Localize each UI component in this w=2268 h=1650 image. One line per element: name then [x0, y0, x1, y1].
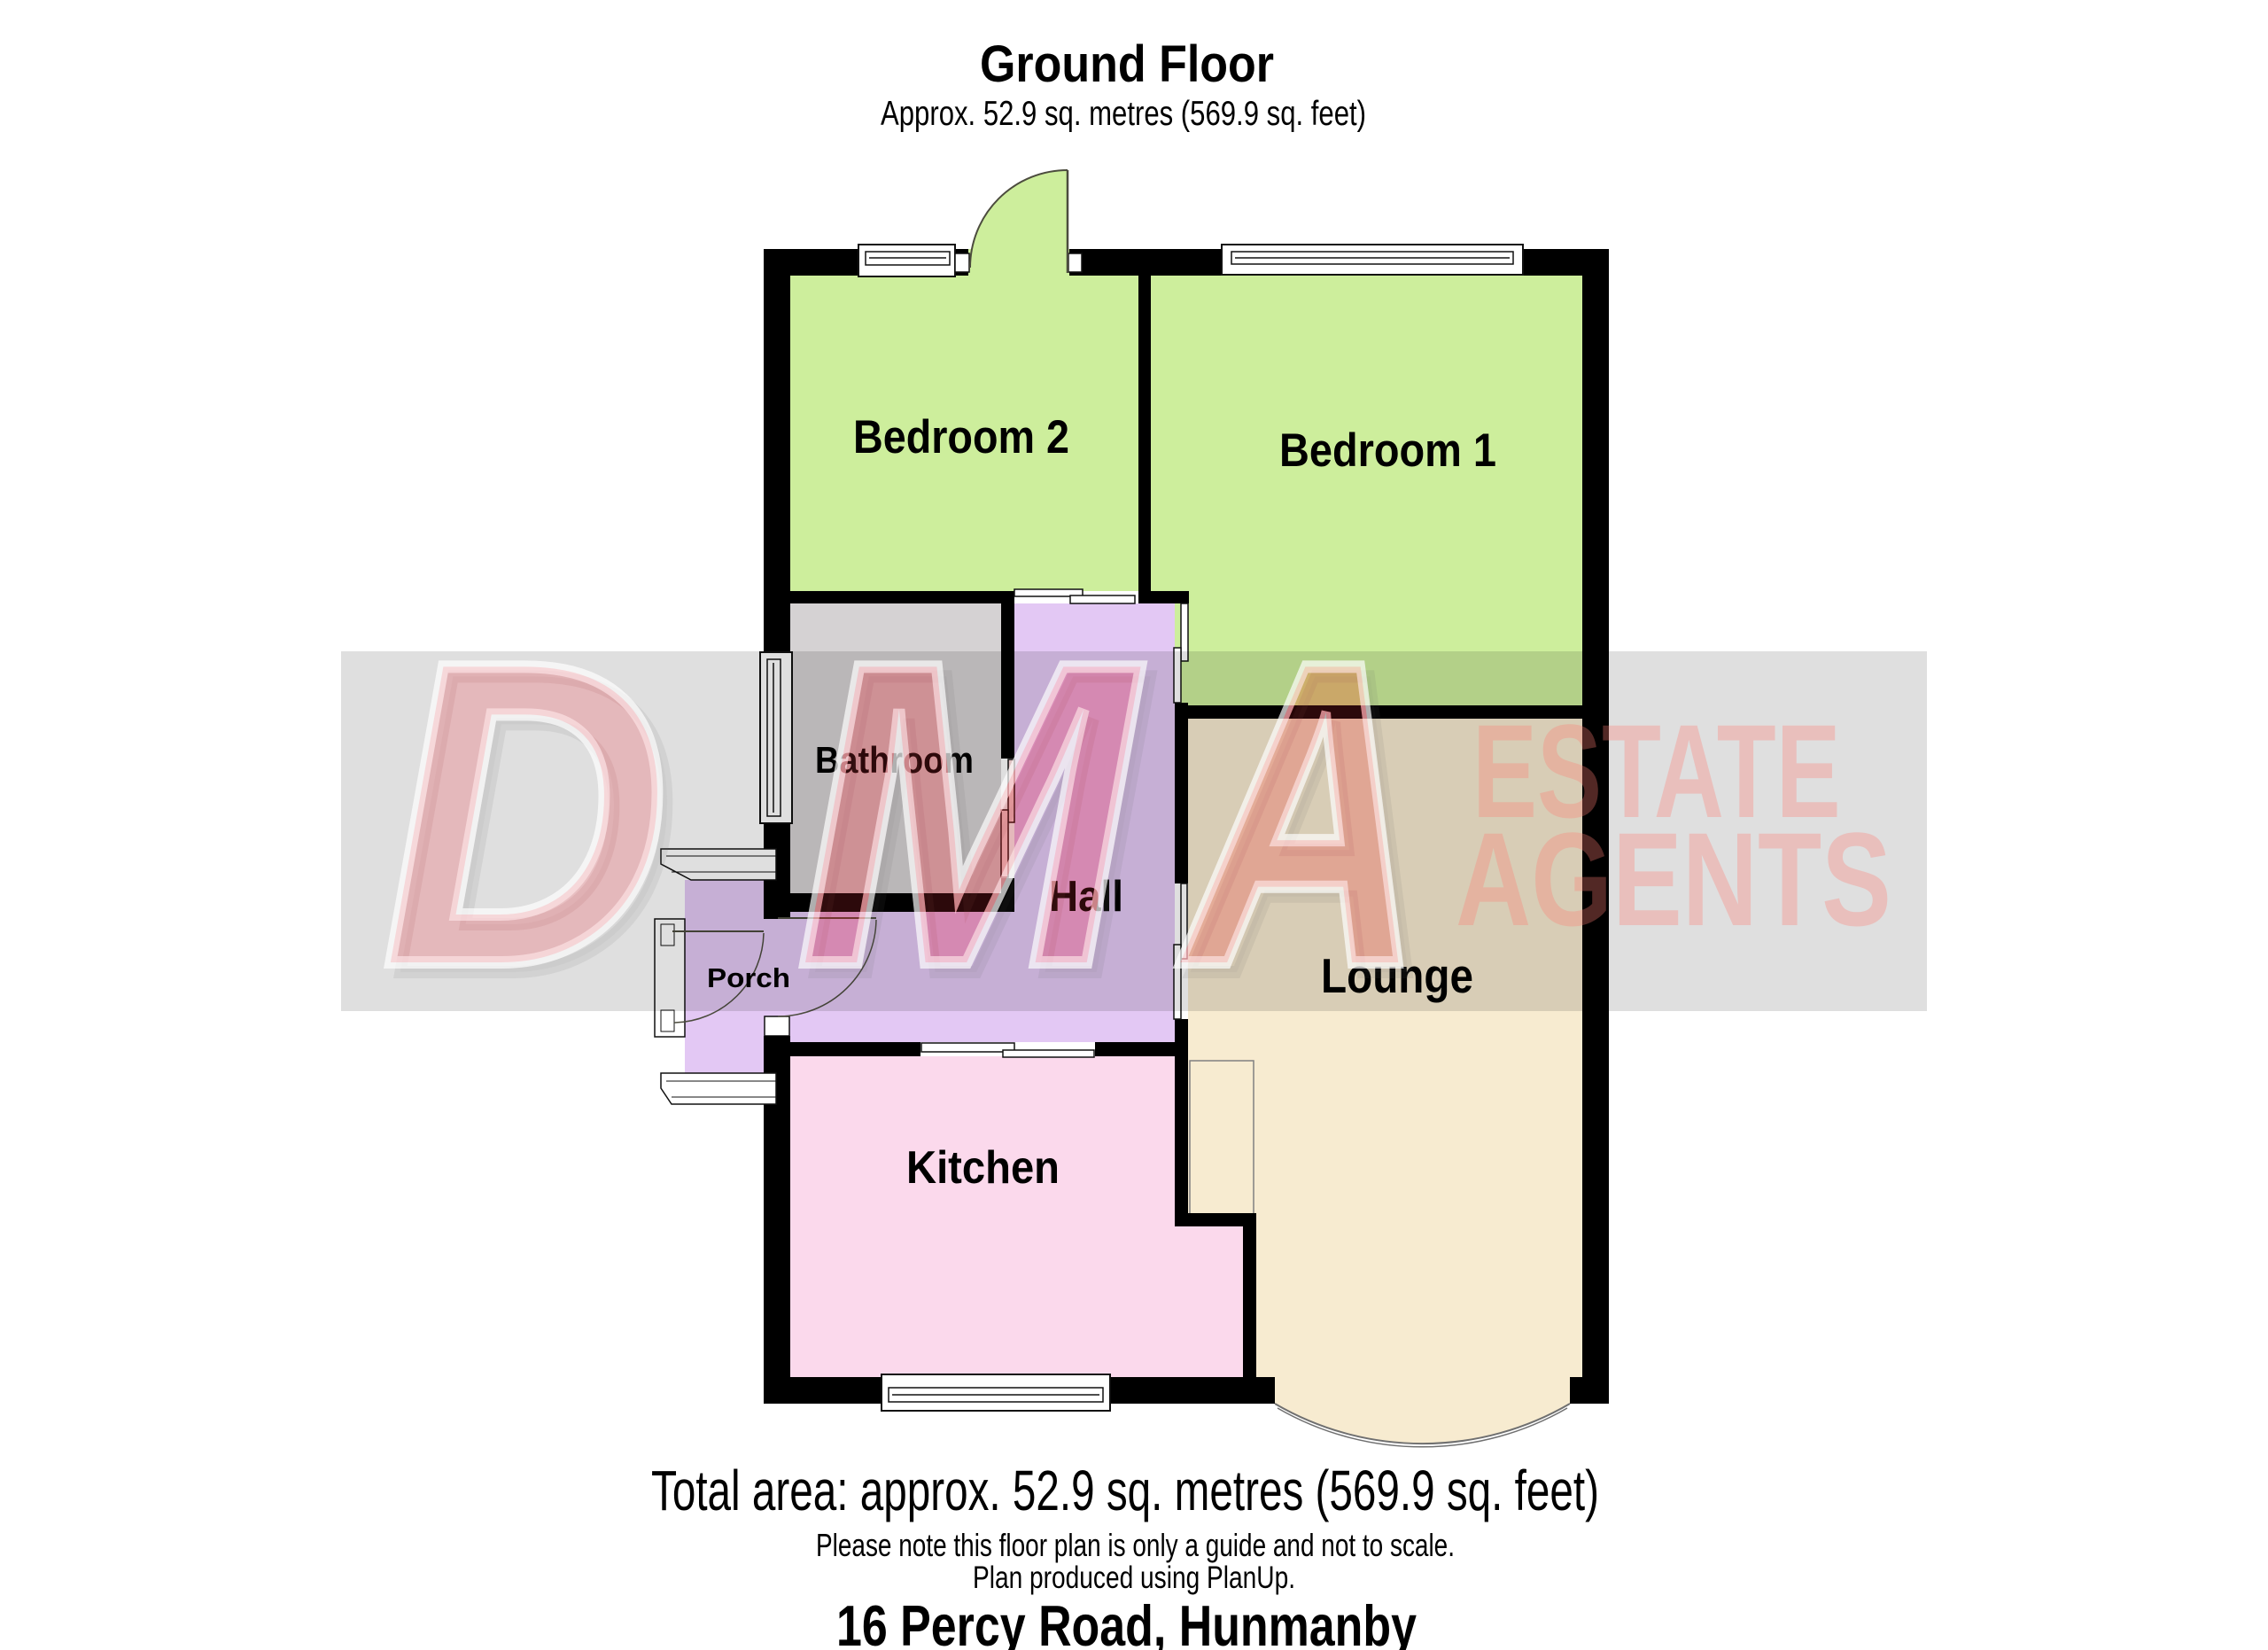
svg-text:Bedroom 2: Bedroom 2	[853, 411, 1069, 463]
svg-text:AGENTS: AGENTS	[1456, 805, 1891, 953]
svg-text:Plan produced using PlanUp.: Plan produced using PlanUp.	[973, 1560, 1295, 1595]
svg-text:Please note this floor plan is: Please note this floor plan is only a gu…	[816, 1527, 1455, 1563]
svg-text:Kitchen: Kitchen	[906, 1142, 1060, 1194]
svg-text:A: A	[1177, 574, 1422, 1054]
svg-text:Bedroom 1: Bedroom 1	[1279, 424, 1496, 477]
svg-text:M: M	[798, 573, 1145, 1054]
svg-text:Total area: approx. 52.9 sq. m: Total area: approx. 52.9 sq. metres (569…	[651, 1459, 1599, 1522]
svg-text:Ground Floor: Ground Floor	[980, 35, 1274, 93]
svg-text:D: D	[384, 573, 669, 1054]
svg-text:Approx. 52.9 sq. metres (569.9: Approx. 52.9 sq. metres (569.9 sq. feet)	[881, 95, 1366, 133]
svg-text:16 Percy Road, Hunmanby: 16 Percy Road, Hunmanby	[836, 1593, 1417, 1650]
